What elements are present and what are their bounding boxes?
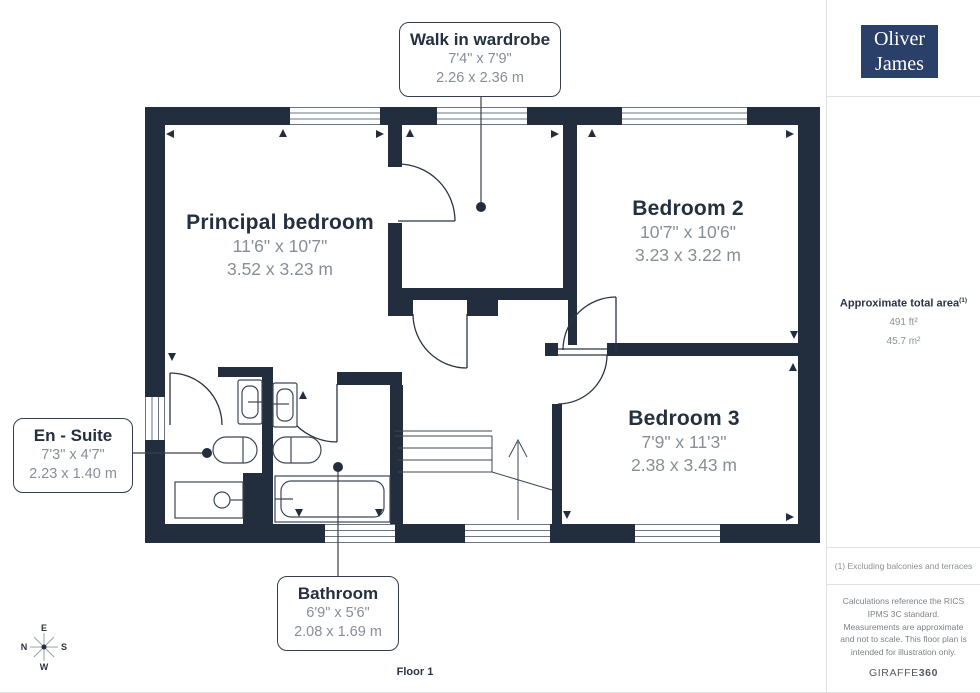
compass-left-label: N [21,642,28,652]
windows-group [145,107,747,543]
room-name: Bathroom [284,584,392,604]
logo-section: Oliver James [827,0,980,97]
area-sqft-value: 491 ft² [889,317,917,328]
info-sidebar: Oliver James Approximate total area(1) 4… [826,0,980,693]
disclaimer-text: Calculations reference the RICS IPMS 3C … [840,595,967,659]
footnote-text: (1) Excluding balconies and terraces [835,561,973,571]
walls-group [145,107,820,543]
oliver-james-logo: Oliver James [861,25,938,78]
bathroom-toilet-icon [273,437,321,463]
compass-bottom-label: W [40,662,49,672]
footnote-section: (1) Excluding balconies and terraces [827,547,980,584]
floor-label: Floor 1 [340,666,490,678]
ensuite-sink-icon [238,380,262,424]
area-footnote-marker: (1) [959,297,967,304]
compass-right-label: S [61,642,67,652]
bathroom-sink-icon [273,383,297,427]
room-dims-imperial: 7'3" x 4'7" [20,446,126,465]
giraffe360-logo: GIRAFFE360 [840,667,967,679]
label-bathroom: Bathroom 6'9" x 5'6" 2.08 x 1.69 m [277,576,399,651]
label-en-suite: En - Suite 7'3" x 4'7" 2.23 x 1.40 m [13,418,133,493]
room-dims-imperial: 6'9" x 5'6" [284,604,392,623]
room-dims-metric: 2.23 x 1.40 m [20,465,126,484]
compass-top-label: E [41,623,47,633]
shower-icon [175,482,243,518]
room-name: En - Suite [20,426,126,446]
logo-line-2: James [861,52,938,77]
room-dims-metric: 2.26 x 2.36 m [406,69,554,88]
label-walk-in-wardrobe: Walk in wardrobe 7'4" x 7'9" 2.26 x 2.36… [399,22,561,97]
compass-icon: E N S W [21,623,67,672]
area-title: Approximate total area(1) [840,297,967,310]
dimension-markers-group [166,129,798,521]
ensuite-toilet-icon [213,437,257,463]
total-area-section: Approximate total area(1) 491 ft² 45.7 m… [827,97,980,547]
stairs-icon [395,431,552,520]
disclaimer-section: Calculations reference the RICS IPMS 3C … [827,584,980,693]
logo-line-1: Oliver [861,27,938,52]
room-dims-imperial: 7'4" x 7'9" [406,50,554,69]
area-sqm-value: 45.7 m² [887,336,921,347]
room-dims-metric: 2.08 x 1.69 m [284,623,392,642]
floorplan-page: E N S W Principal bedroom 11'6" x 10'7" … [0,0,980,693]
bathtub-icon [275,476,390,522]
room-name: Walk in wardrobe [406,30,554,50]
